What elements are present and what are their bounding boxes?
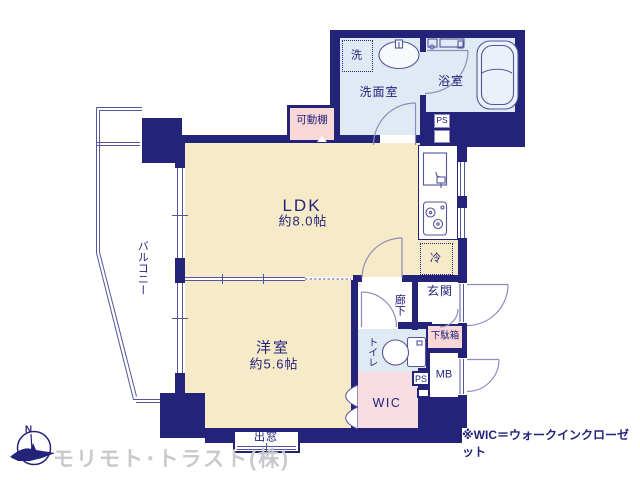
wall xyxy=(175,135,185,168)
wall xyxy=(420,38,426,52)
wall xyxy=(458,196,467,208)
wall xyxy=(175,373,185,395)
mb-label: MB xyxy=(436,369,453,382)
compass-n-label: N xyxy=(25,424,33,436)
mb-door-arc xyxy=(467,360,499,392)
wall xyxy=(420,95,426,112)
ps-upper-label: PS xyxy=(436,116,447,126)
washer-label: 洗 xyxy=(351,50,363,63)
hallway-label: 廊下 xyxy=(393,294,406,316)
wall xyxy=(402,275,467,282)
ps-upper-box-2 xyxy=(434,130,450,143)
toilet-label: トイレ xyxy=(365,337,377,367)
compass-logo xyxy=(10,432,55,465)
wic-note: ※WIC＝ウォークインクローゼット xyxy=(462,426,640,460)
movable-shelf-label: 可動棚 xyxy=(296,114,328,126)
wall xyxy=(178,135,290,143)
balcony-window-bedroom xyxy=(175,283,185,373)
pillar xyxy=(160,393,205,438)
ldk-size-label: 約8.0帖 xyxy=(278,215,327,230)
floor-plan: バルコニー LDK 約8.0帖 洋室 約5.6帖 洗面室 洗 浴室 可動棚 冷 … xyxy=(0,0,640,480)
western-room-size-label: 約5.6帖 xyxy=(249,358,298,373)
entrance-label: 玄関 xyxy=(427,285,453,299)
kitchen-window-upper xyxy=(458,162,467,196)
washroom-label: 洗面室 xyxy=(359,86,398,100)
wall xyxy=(175,258,185,283)
ps-lower-label: PS xyxy=(415,374,427,384)
bathroom-label: 浴室 xyxy=(438,75,464,89)
balcony-window-ldk xyxy=(175,168,185,258)
shoe-cabinet-label: 下駄箱 xyxy=(431,332,460,343)
wall xyxy=(330,135,380,143)
company-name: モリモト･トラスト(株) xyxy=(53,443,290,473)
ps-lower-box-2 xyxy=(417,388,430,398)
refrigerator-label: 冷 xyxy=(430,253,442,266)
western-room-label: 洋室 xyxy=(256,339,290,356)
kitchen-window-lower xyxy=(458,208,467,238)
toilet-door-arc xyxy=(362,292,397,327)
wall xyxy=(351,280,358,433)
balcony-label: バルコニー xyxy=(136,241,149,296)
wall xyxy=(418,397,462,433)
wic-label: WIC xyxy=(373,396,402,410)
kitchen-counter xyxy=(418,145,458,240)
wall xyxy=(330,30,525,38)
wall xyxy=(458,143,467,162)
entry-door-arc xyxy=(467,285,508,326)
